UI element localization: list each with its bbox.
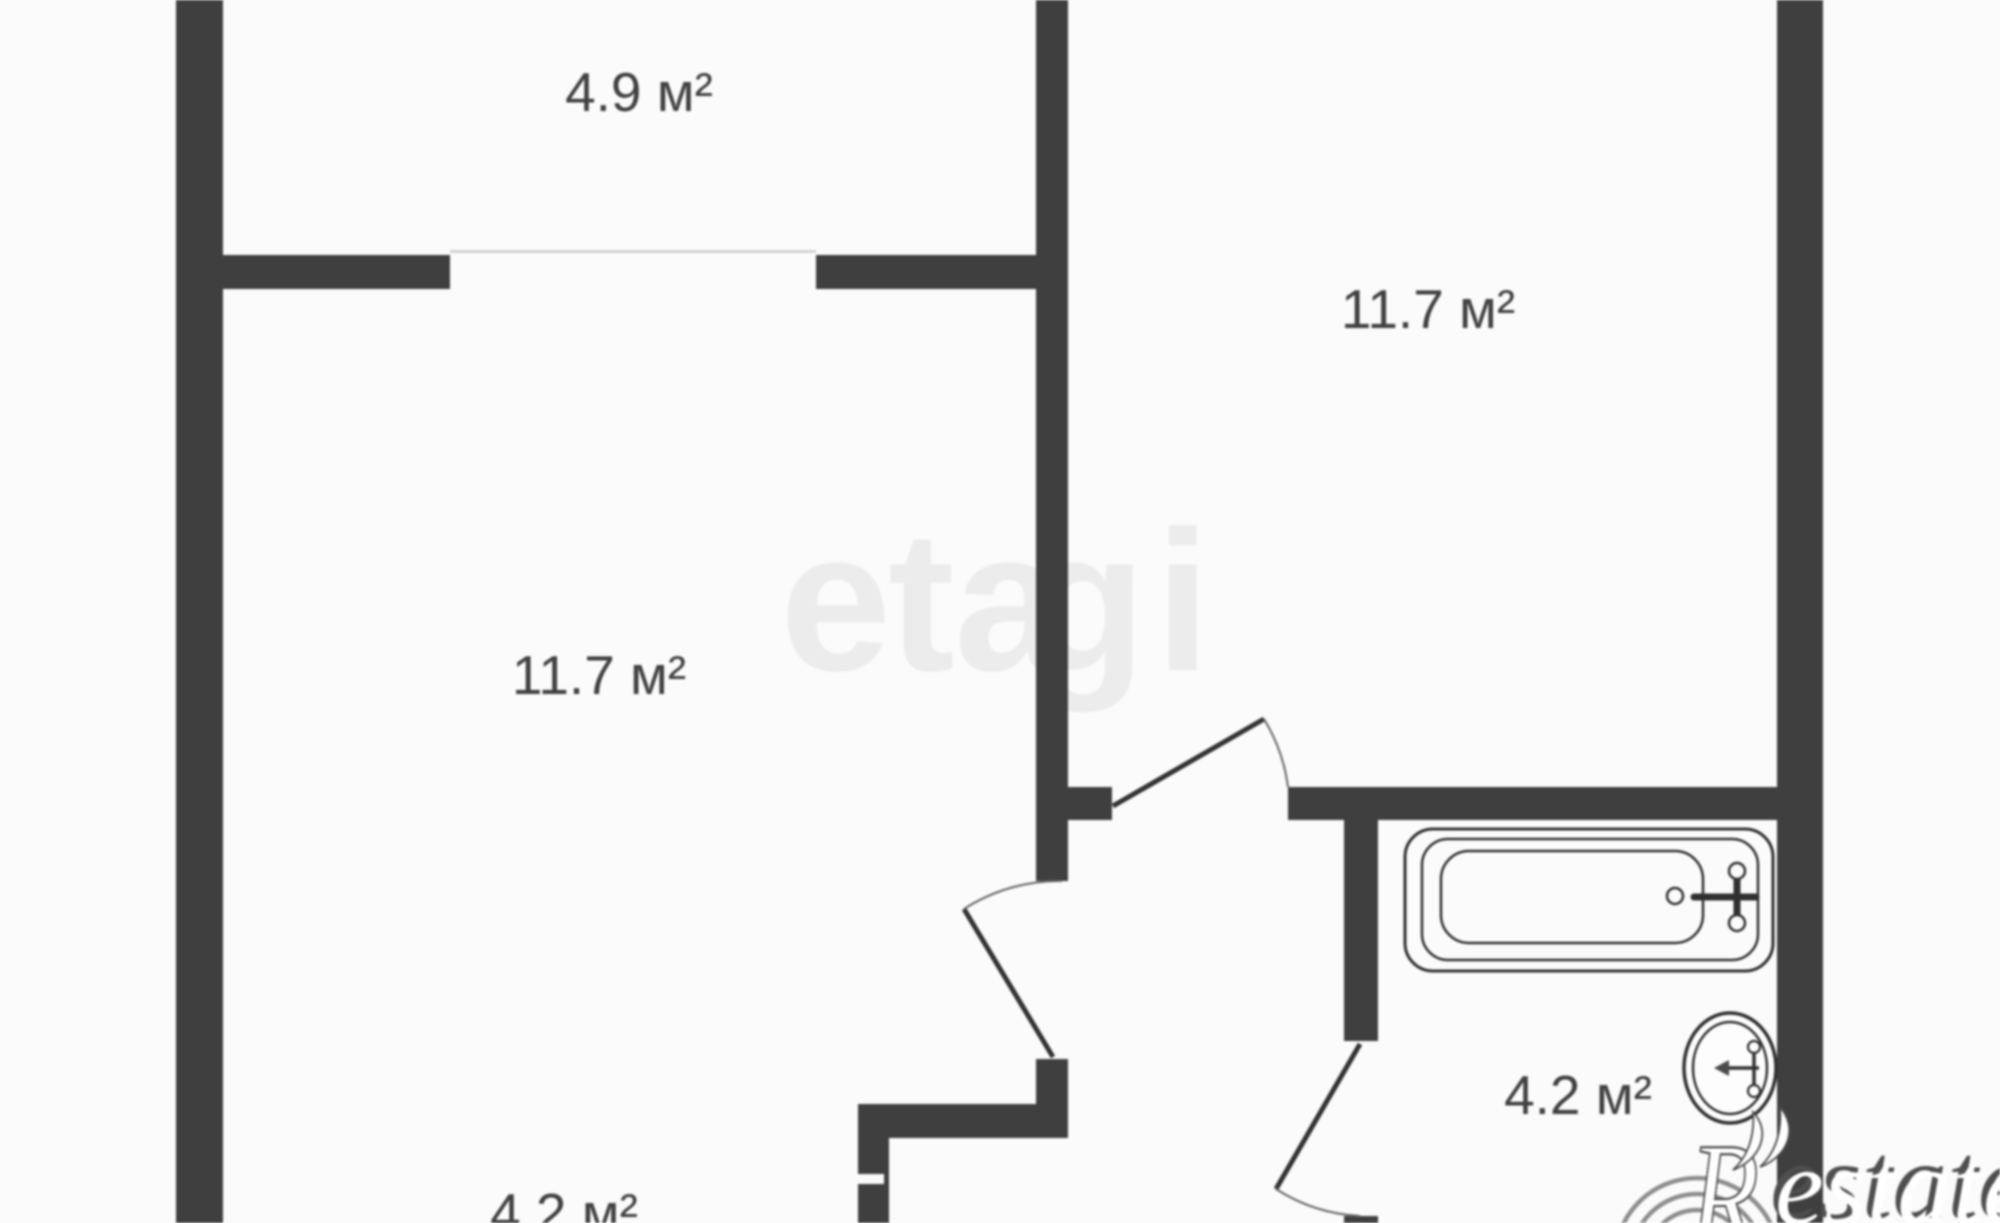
svg-text:R: R xyxy=(1688,1111,1759,1223)
svg-text:11.7 м²: 11.7 м² xyxy=(1341,278,1515,340)
svg-text:4.2 м²: 4.2 м² xyxy=(490,1182,638,1223)
svg-text:4.2 м²: 4.2 м² xyxy=(1504,1064,1652,1126)
svg-text:11.7 м²: 11.7 м² xyxy=(512,644,686,706)
svg-text:4.9 м²: 4.9 м² xyxy=(565,61,713,123)
svg-text:estate: estate xyxy=(1775,1126,2000,1223)
svg-text:etagi: etagi xyxy=(780,490,1211,713)
